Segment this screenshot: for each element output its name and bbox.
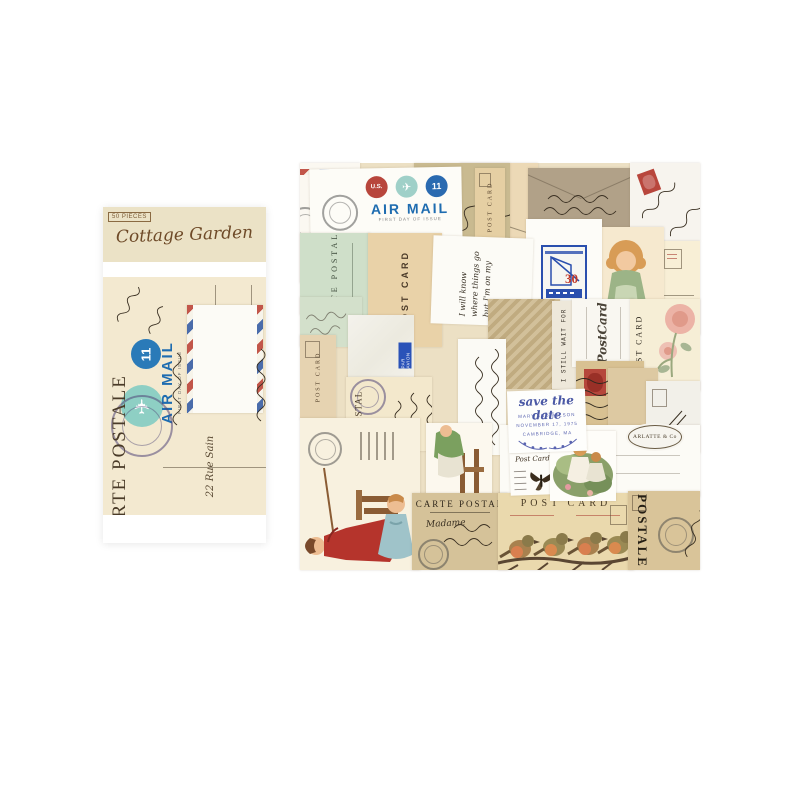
us-label: U.S. [371, 184, 383, 190]
postcard-script-label: PostCard [596, 302, 610, 363]
postmark-icon [308, 432, 342, 466]
laurel-icon [517, 435, 579, 451]
eleven-label: 11 [432, 181, 442, 191]
post-card-script-label: Post Card [509, 454, 555, 464]
divider-line [352, 243, 353, 305]
save-the-date-card: save the date MARY AND WILSON NOVEMBER 1… [507, 389, 587, 454]
air-mail-title: AIR MAIL [362, 200, 458, 218]
par-avion-text: PAR AVION [400, 343, 410, 369]
stamp-box [479, 173, 491, 187]
stamp-box [652, 389, 667, 407]
arlatte-oval-logo: ARLATTE & Co [628, 425, 682, 449]
still-wait-label: I STILL WAIT FOR [561, 308, 568, 382]
postale-label: POSTALE [634, 494, 650, 568]
post-card-label: POST CARD [315, 352, 321, 403]
stamp-box [305, 341, 320, 358]
handwriting-scribble [512, 467, 529, 492]
stamp-inner [641, 173, 657, 190]
handwriting-scribble [542, 204, 620, 216]
merchant-stamp-block [353, 429, 405, 463]
stamp-box [664, 249, 682, 269]
airmail-envelope-art [187, 305, 263, 413]
green-figure-card [426, 423, 492, 501]
postmark-icon [322, 194, 359, 231]
postmark-inner-ring [315, 439, 336, 460]
address-line [610, 455, 680, 456]
package-title: Cottage Garden [103, 222, 267, 248]
handwriting-scribble [442, 535, 500, 547]
airmail-border [187, 305, 193, 413]
handwriting-scribble [452, 521, 502, 533]
eleven-stamp-circle: 11 [425, 175, 447, 197]
eleven-label: 11 [139, 347, 154, 361]
us-stamp-circle: U.S. [365, 176, 387, 198]
green-figure-illustration [426, 423, 492, 501]
airplane-stamp-circle: ✈ [395, 175, 417, 197]
divider-line [586, 307, 587, 359]
postale-kraft-card: POSTALE [628, 491, 700, 570]
stamp-text-lines [353, 429, 405, 463]
carte-postal-title: CARTE POSTAL [412, 499, 508, 509]
roses-illustration [652, 299, 700, 391]
postcard-script-card: PostCard [572, 299, 634, 367]
arlatte-label: ARLATTE & Co [633, 434, 677, 440]
product-package: 50 PIECES Cottage Garden 11 ✈ AIR MAIL F… [103, 207, 266, 543]
divider-line [620, 307, 621, 359]
address-line [610, 473, 680, 474]
carte-postale-vertical: CARTE POSTALE [103, 407, 165, 515]
handwriting-scribble [546, 192, 618, 204]
handwriting-scribble [111, 280, 144, 326]
narrow-post-card: POST CARD [300, 335, 336, 419]
handwriting-scribble [253, 335, 266, 423]
victorian-scene-card [300, 418, 420, 570]
postmark-inner-ring [329, 201, 352, 224]
address-vertical: 22 Rue Sain [199, 417, 223, 515]
stamp-text-line [667, 258, 677, 259]
mini-postcard-tan: POST CARD [475, 168, 505, 246]
pieces-badge: 50 PIECES [108, 212, 151, 222]
package-art: 11 ✈ AIR MAIL FIRST DAY OF ISSUE CARTE P… [103, 277, 266, 515]
stamp-text-line [667, 254, 677, 255]
airplane-icon: ✈ [402, 180, 411, 193]
birds-illustration [498, 519, 634, 570]
birds-postcard: POST CARD [498, 493, 634, 570]
postmark-inner-ring [424, 545, 443, 564]
subtitle-line [510, 515, 554, 516]
address-line [662, 295, 694, 296]
sepia-carte-postal: CARTE POSTAL Madame [412, 493, 508, 570]
subtitle-line [430, 512, 490, 513]
blue-30-stamp: 30 [541, 245, 587, 305]
handwriting-scribble [169, 343, 183, 427]
par-avion-label: PAR AVION [399, 343, 412, 369]
collage-sheet: POST CARD U.S. ✈ 11 AIR MAIL FIRST DAY O… [300, 163, 700, 570]
carte-postale-label: CARTE POSTALE [109, 374, 131, 515]
post-card-label: POST CARD [487, 182, 493, 233]
address-label: 22 Rue Sain [206, 435, 217, 496]
thirty-label: 30 [565, 271, 578, 286]
first-day-subtitle: FIRST DAY OF ISSUE [362, 216, 458, 223]
postmark-icon [418, 539, 449, 570]
package-header: 50 PIECES Cottage Garden [103, 207, 266, 262]
